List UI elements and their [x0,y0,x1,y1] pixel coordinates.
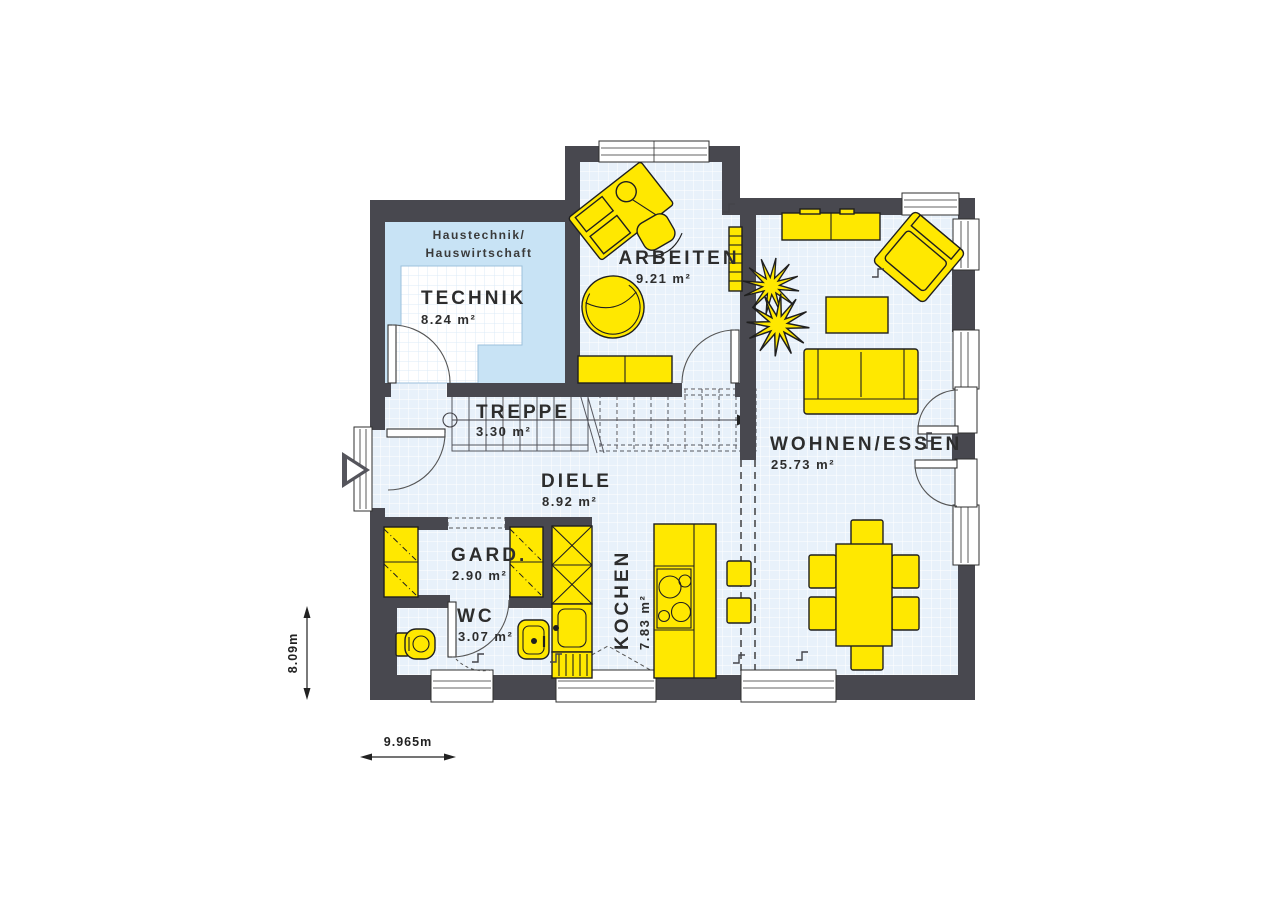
tall-cabinet [552,526,592,604]
sideboard-arbeiten [578,356,672,383]
window-living-bottom [741,670,836,702]
room-area-technik: 8.24 m² [421,312,476,327]
kitchen-sink [552,604,592,652]
room-label-wc: WC [457,606,495,627]
floor-plan: 8.09m 9.965m Haustechnik/ Hauswirtschaft… [0,0,1280,905]
room-label-technik: TECHNIK [421,288,526,309]
wall-segment [655,675,743,700]
window-right-middle [953,330,979,389]
bar-stool [727,598,751,623]
room-label-wohnen-essen: WOHNEN/ESSEN [770,434,962,455]
wall-segment [565,383,682,397]
wall-segment [835,675,975,700]
room-area-kochen: 7.83 m² [637,595,652,650]
bar-stool [727,561,751,586]
window-arbeiten-top [599,141,709,162]
wall-segment [447,383,580,397]
room-area-treppe: 3.30 m² [476,424,531,439]
wall-segment [958,198,975,222]
window-top-right [902,193,959,215]
room-area-wc: 3.07 m² [458,629,513,644]
dimension-horizontal: 9.965m [360,735,456,761]
door-frame-right-lower [955,459,977,507]
room-label-arbeiten: ARBEITEN [618,248,739,269]
wardrobe-cabinet [384,527,418,597]
window-right-lower [953,505,979,565]
wall-segment [958,563,975,690]
dimension-vertical: 8.09m [286,606,311,700]
depth-dimension-label: 8.09m [286,633,300,673]
toilet [396,629,435,659]
room-label-gard: GARD. [451,545,527,566]
room-area-diele: 8.92 m² [542,494,597,509]
dishwasher [552,652,592,678]
wall-segment [952,268,975,332]
room-label-diele: DIELE [541,471,612,492]
room-label-kochen: KOCHEN [612,550,633,650]
room-area-gard: 2.90 m² [452,568,507,583]
window-wc-bottom [431,670,493,702]
kitchen-island [654,524,716,678]
coffee-table [826,297,888,333]
sofa [804,349,918,414]
sideboard-wohnen [782,209,880,240]
room-area-wohnen-essen: 25.73 m² [771,457,835,472]
room-area-arbeiten: 9.21 m² [636,271,691,286]
width-dimension-label: 9.965m [384,735,432,749]
wall-segment [565,146,603,162]
wall-segment [370,383,391,397]
washbasin [518,620,549,659]
wall-segment [370,200,580,222]
wall-segment [370,675,433,700]
room-label-treppe: TREPPE [476,402,570,423]
technik-note-line1: Haustechnik/ [433,228,526,242]
wall-segment [492,675,558,700]
wall-segment [735,383,740,397]
technik-note-line2: Hauswirtschaft [425,246,532,260]
